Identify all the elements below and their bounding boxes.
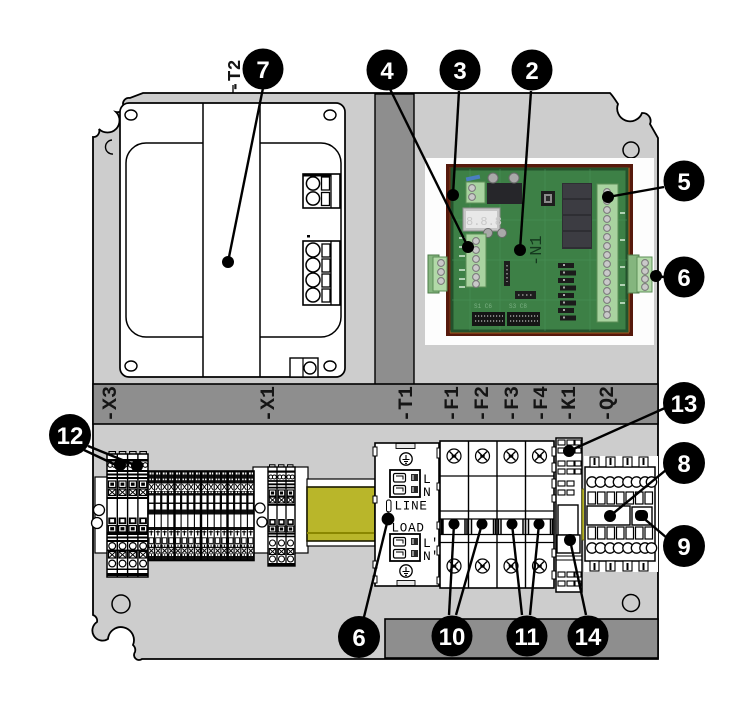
svg-text:9: 9 bbox=[677, 534, 690, 561]
svg-text:14: 14 bbox=[575, 624, 602, 651]
svg-text:S3 C8: S3 C8 bbox=[509, 303, 527, 310]
svg-text:N': N' bbox=[423, 549, 439, 564]
svg-text:-F1: -F1 bbox=[442, 386, 465, 422]
svg-text:-Q2: -Q2 bbox=[597, 386, 620, 422]
svg-text:6: 6 bbox=[352, 625, 365, 652]
svg-text:3: 3 bbox=[453, 58, 466, 85]
svg-text:-T1: -T1 bbox=[396, 386, 419, 422]
svg-text:-N1: -N1 bbox=[528, 235, 547, 266]
svg-text:-X1: -X1 bbox=[258, 386, 281, 422]
svg-text:-F3: -F3 bbox=[502, 386, 525, 422]
svg-text:8: 8 bbox=[677, 451, 690, 478]
svg-text:S1 C6: S1 C6 bbox=[474, 303, 492, 310]
svg-text:N: N bbox=[423, 485, 431, 500]
svg-text:-F2: -F2 bbox=[472, 386, 495, 422]
svg-text:-K1: -K1 bbox=[559, 386, 582, 422]
svg-text:7: 7 bbox=[256, 57, 269, 84]
svg-text:8.8.8: 8.8.8 bbox=[466, 215, 502, 229]
svg-text:13: 13 bbox=[671, 391, 698, 418]
svg-text:6: 6 bbox=[677, 265, 690, 292]
svg-text:10: 10 bbox=[439, 624, 466, 651]
svg-text:-X3: -X3 bbox=[100, 386, 123, 422]
svg-text:-F4: -F4 bbox=[531, 386, 554, 422]
svg-text:2: 2 bbox=[525, 58, 538, 85]
svg-text:5: 5 bbox=[677, 169, 690, 196]
svg-text:4: 4 bbox=[380, 58, 394, 85]
svg-text:11: 11 bbox=[514, 624, 539, 651]
svg-text:-T2: -T2 bbox=[226, 60, 246, 92]
svg-text:LINE: LINE bbox=[395, 500, 428, 514]
svg-text:12: 12 bbox=[57, 423, 84, 450]
